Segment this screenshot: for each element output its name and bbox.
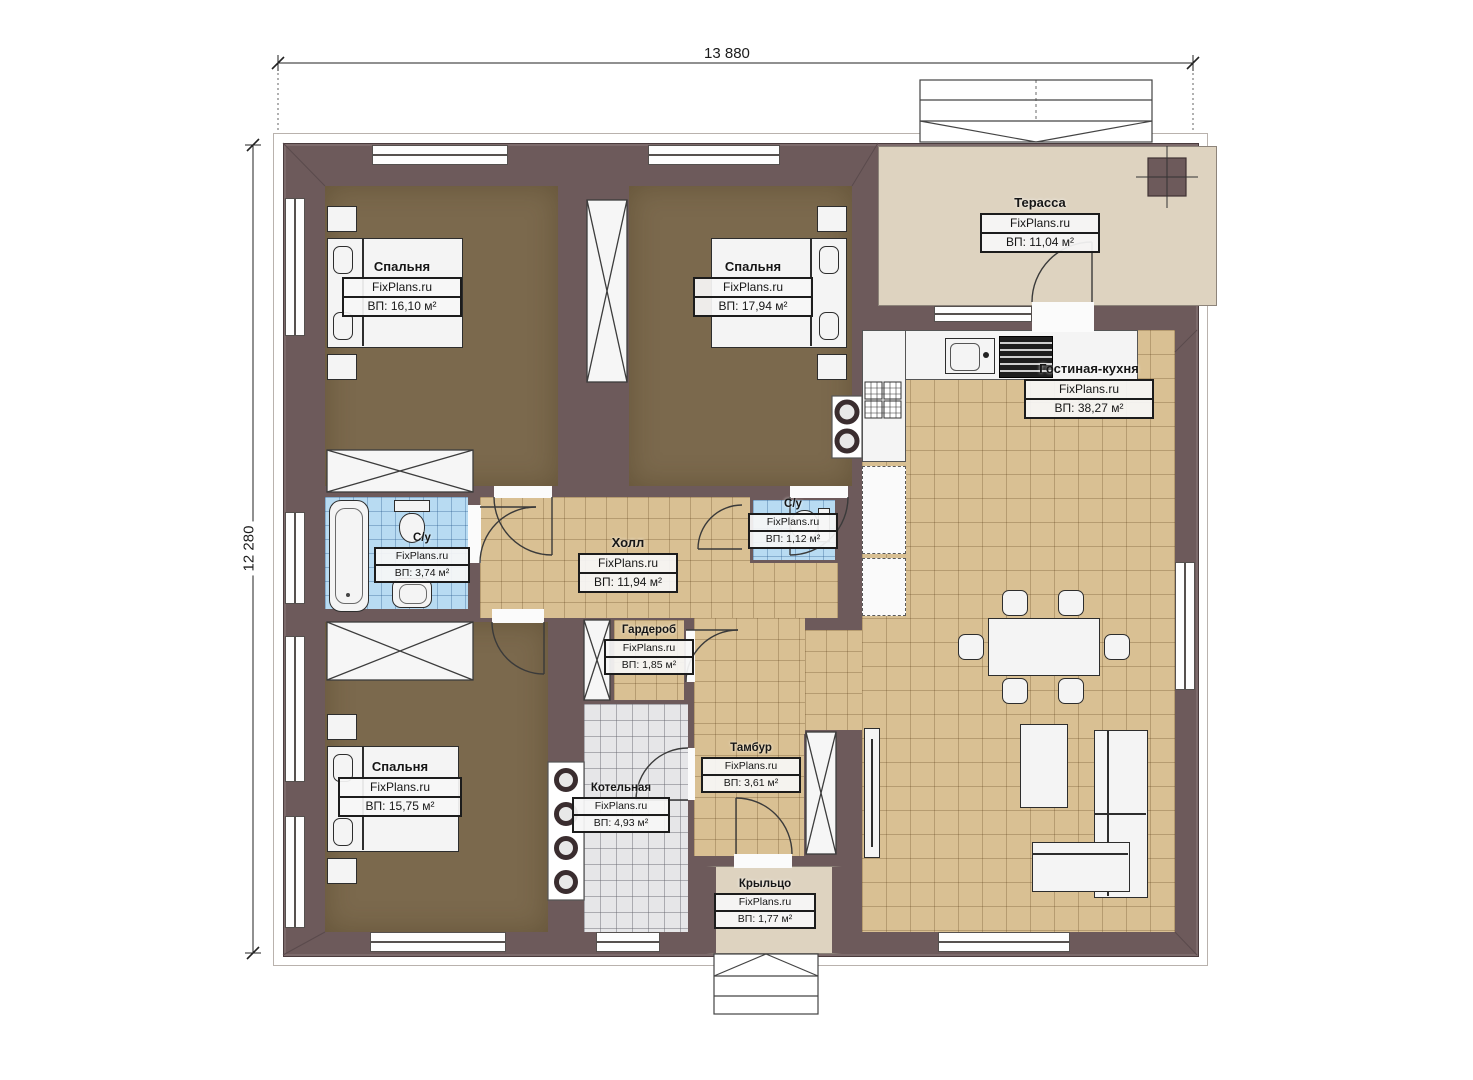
sofa-armrest-line [1033, 853, 1128, 855]
nightstand [817, 354, 847, 380]
hall-corridor-floor [694, 618, 805, 734]
dining-table [988, 618, 1100, 676]
room-area: ВП: 4,93 м² [574, 816, 668, 831]
room-area: ВП: 11,94 м² [580, 574, 676, 591]
room-area: ВП: 38,27 м² [1026, 400, 1152, 417]
window-bedroom-3-left-2 [285, 816, 305, 928]
room-name: Холл [578, 536, 678, 551]
nightstand [817, 206, 847, 232]
boiler-door-opening [688, 748, 695, 800]
dining-chair [1058, 590, 1084, 616]
label-terrace: Терасса FixPlans.ru ВП: 11,04 м² [980, 196, 1100, 253]
room-name: Спальня [338, 760, 462, 775]
sofa-cushion-line [1095, 813, 1146, 815]
sink-basin [950, 343, 980, 371]
entrance-door-opening [734, 854, 792, 868]
room-area: ВП: 16,10 м² [344, 298, 460, 315]
room-area: ВП: 15,75 м² [340, 798, 460, 815]
room-area: ВП: 1,12 м² [750, 532, 836, 547]
room-name: С/у [748, 498, 838, 511]
kitchen-counter-left [862, 330, 906, 462]
window-bedroom-3-bottom [370, 932, 506, 952]
label-wc: С/у FixPlans.ru ВП: 1,12 м² [748, 498, 838, 549]
tv-screen-line [871, 739, 873, 847]
watermark: FixPlans.ru [695, 279, 811, 298]
room-name: С/у [374, 532, 470, 545]
nightstand [327, 858, 357, 884]
room-name: Гостиная-кухня [1024, 362, 1154, 377]
label-living-kitchen: Гостиная-кухня FixPlans.ru ВП: 38,27 м² [1024, 362, 1154, 419]
dining-chair [1002, 678, 1028, 704]
room-name: Спальня [342, 260, 462, 275]
room-name: Гардероб [604, 624, 694, 637]
terrace-door-opening [1032, 302, 1094, 332]
bathtub-inner [335, 508, 363, 604]
coffee-table [1020, 724, 1068, 808]
window-bedroom-1-left [285, 198, 305, 336]
watermark: FixPlans.ru [344, 279, 460, 298]
dimension-width-label: 13 880 [700, 45, 754, 62]
label-bathroom: С/у FixPlans.ru ВП: 3,74 м² [374, 532, 470, 583]
room-name: Терасса [980, 196, 1100, 211]
watermark: FixPlans.ru [716, 895, 814, 912]
bedroom-1-door-opening [494, 486, 552, 498]
label-bedroom-1: Спальня FixPlans.ru ВП: 16,10 м² [342, 260, 462, 317]
watermark: FixPlans.ru [580, 555, 676, 574]
faucet [983, 352, 989, 358]
pillow [819, 312, 839, 340]
room-area: ВП: 11,04 м² [982, 234, 1098, 251]
room-name: Тамбур [701, 742, 801, 755]
kitchen-counter-planned-1 [862, 466, 906, 554]
room-name: Крыльцо [714, 878, 816, 891]
sink-basin [399, 584, 427, 604]
room-area: ВП: 3,74 м² [376, 566, 468, 581]
room-name: Спальня [693, 260, 813, 275]
watermark: FixPlans.ru [982, 215, 1098, 234]
window-bathroom-left [285, 512, 305, 604]
dimension-depth-label: 12 280 [240, 522, 257, 576]
watermark: FixPlans.ru [376, 549, 468, 566]
kitchen-sink [945, 338, 995, 374]
room-name: Котельная [572, 782, 670, 795]
pillow [333, 818, 353, 846]
label-boiler-room: Котельная FixPlans.ru ВП: 4,93 м² [572, 782, 670, 833]
window-bedroom-2-top [648, 145, 780, 165]
bathtub-drain [346, 593, 350, 597]
nightstand [327, 714, 357, 740]
window-living-right [1175, 562, 1195, 690]
label-hall: Холл FixPlans.ru ВП: 11,94 м² [578, 536, 678, 593]
watermark: FixPlans.ru [750, 515, 836, 532]
bedroom-2-door-opening [790, 486, 848, 498]
window-bedroom-1-top [372, 145, 508, 165]
dining-chair [958, 634, 984, 660]
watermark: FixPlans.ru [574, 799, 668, 816]
watermark: FixPlans.ru [703, 759, 799, 776]
hall-living-opening [805, 630, 862, 730]
room-area: ВП: 17,94 м² [695, 298, 811, 315]
label-bedroom-3: Спальня FixPlans.ru ВП: 15,75 м² [338, 760, 462, 817]
window-boiler-bottom [596, 932, 660, 952]
nightstand [327, 206, 357, 232]
sofa-bottom-section [1032, 842, 1130, 892]
label-wardrobe: Гардероб FixPlans.ru ВП: 1,85 м² [604, 624, 694, 675]
window-kitchen-terrace [934, 306, 1032, 322]
window-bedroom-3-left-1 [285, 636, 305, 782]
watermark: FixPlans.ru [340, 779, 460, 798]
room-area: ВП: 1,77 м² [716, 912, 814, 927]
label-vestibule: Тамбур FixPlans.ru ВП: 3,61 м² [701, 742, 801, 793]
floor-plan-canvas: 13 880 12 280 Спальня FixPlans.ru ВП: 16… [0, 0, 1473, 1080]
room-area: ВП: 3,61 м² [703, 776, 799, 791]
toilet-tank [394, 500, 430, 512]
dimension-width-line [272, 55, 1199, 133]
label-bedroom-2: Спальня FixPlans.ru ВП: 17,94 м² [693, 260, 813, 317]
kitchen-counter-planned-2 [862, 558, 906, 616]
tv-unit [864, 728, 880, 858]
watermark: FixPlans.ru [606, 641, 692, 658]
label-porch: Крыльцо FixPlans.ru ВП: 1,77 м² [714, 878, 816, 929]
bathtub [329, 500, 369, 612]
bedroom-3-door-opening [492, 609, 544, 623]
window-living-bottom [938, 932, 1070, 952]
dining-chair [1002, 590, 1028, 616]
dining-chair [1058, 678, 1084, 704]
watermark: FixPlans.ru [1026, 381, 1152, 400]
dining-chair [1104, 634, 1130, 660]
pillow [819, 246, 839, 274]
nightstand [327, 354, 357, 380]
room-area: ВП: 1,85 м² [606, 658, 692, 673]
